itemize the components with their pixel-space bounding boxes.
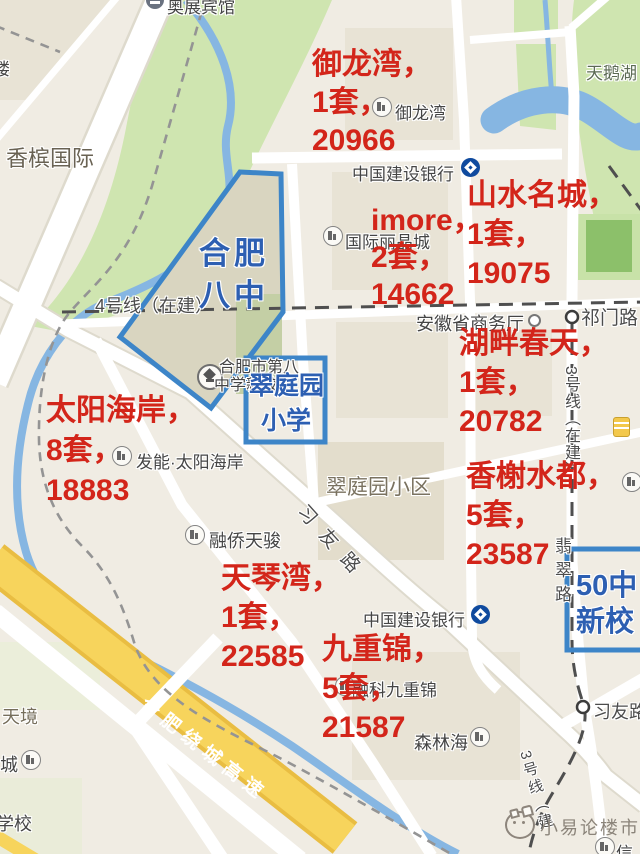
listing-xiangxie-shuidu: 香榭水都， 5套， 23587 xyxy=(466,457,616,574)
listing-name: 香榭水都， xyxy=(466,457,616,496)
building-icon xyxy=(185,525,205,550)
listing-price: 18883 xyxy=(46,471,196,511)
ccb-bank-icon xyxy=(461,158,480,177)
no50-new-campus-label-line2: 新校 xyxy=(576,598,634,640)
listing-units: 8套， xyxy=(46,431,196,471)
listing-imore: imore， 2套， 14662 xyxy=(371,202,483,313)
listing-name: 天琴湾， xyxy=(221,559,341,598)
rongqiao-tianjun-label: 融侨天骏 xyxy=(209,527,281,553)
listing-units: 5套， xyxy=(322,669,442,708)
watermark-text: 小易论楼市 xyxy=(540,814,640,840)
listing-yulongwan: 御龙湾， 1套， 20966 xyxy=(312,46,432,160)
listing-price: 19075 xyxy=(467,254,617,293)
building-icon xyxy=(323,226,343,251)
building-icon xyxy=(470,727,490,752)
listing-jiuchongjin: 九重锦， 5套， 21587 xyxy=(322,630,442,747)
lou-partial-label: 楼 xyxy=(0,55,10,80)
listing-units: 1套， xyxy=(459,363,609,402)
map[interactable]: 奥展宾馆 楼 香槟国际 天鹅湖 御龙湾 中国建设银行 国际丽晶城 安徽省商务厅 … xyxy=(0,0,640,854)
station-xiyoulu-circle xyxy=(577,701,589,713)
hotel-aozhan-label: 奥展宾馆 xyxy=(167,0,235,18)
listing-hupan-chuntian: 湖畔春天， 1套， 20782 xyxy=(459,324,609,441)
station-xiyoulu-label: 习友路 xyxy=(593,698,640,724)
listing-price: 23587 xyxy=(466,535,616,574)
listing-shanshui-mingcheng: 山水名城， 1套， 19075 xyxy=(467,176,617,293)
cuitingyuan-primary-label-line1: 翠庭园 xyxy=(249,366,324,402)
listing-units: 5套， xyxy=(466,496,616,535)
listing-units: 2套， xyxy=(371,239,483,276)
tianjing-label: 天境 xyxy=(2,703,38,729)
ccb-bank-icon xyxy=(471,605,490,624)
shop-icon xyxy=(613,417,630,437)
listing-name: imore， xyxy=(371,202,483,239)
listing-name: 九重锦， xyxy=(322,630,442,669)
xin-partial-label: 信 xyxy=(616,839,633,854)
cuitingyuan-primary-label-line2: 小学 xyxy=(261,401,311,437)
listing-price: 14662 xyxy=(371,276,483,313)
listing-name: 湖畔春天， xyxy=(459,324,609,363)
listing-units: 1套， xyxy=(467,215,617,254)
listing-name: 山水名城， xyxy=(467,176,617,215)
building-icon xyxy=(622,472,640,497)
ccb-north-label: 中国建设银行 xyxy=(352,160,454,185)
cuitingyuan-estate-label: 翠庭园小区 xyxy=(326,471,431,501)
listing-price: 20782 xyxy=(459,402,609,441)
listing-name: 太阳海岸， xyxy=(46,391,196,431)
xuexiao-partial-label: 学校 xyxy=(0,810,32,836)
metro-line4-label: 4号线（在建） xyxy=(95,292,213,318)
watermark-logo-icon xyxy=(505,811,535,839)
listing-price: 21587 xyxy=(322,708,442,747)
hefei-8-label-line2: 八中 xyxy=(199,270,269,315)
listing-taiyang-haian: 太阳海岸， 8套， 18883 xyxy=(46,391,196,511)
building-icon xyxy=(21,750,41,775)
listing-price: 20966 xyxy=(312,122,432,160)
ccb-south-label: 中国建设银行 xyxy=(363,606,465,631)
swan-lake-label: 天鹅湖 xyxy=(586,59,637,84)
station-qimenlu-circle xyxy=(566,311,578,323)
listing-units: 1套， xyxy=(312,84,432,122)
champagne-intl-label: 香槟国际 xyxy=(6,141,94,173)
cheng-partial-label: 城 xyxy=(0,751,18,777)
listing-name: 御龙湾， xyxy=(312,46,432,84)
hefei-8-label-line1: 合肥 xyxy=(199,228,269,273)
